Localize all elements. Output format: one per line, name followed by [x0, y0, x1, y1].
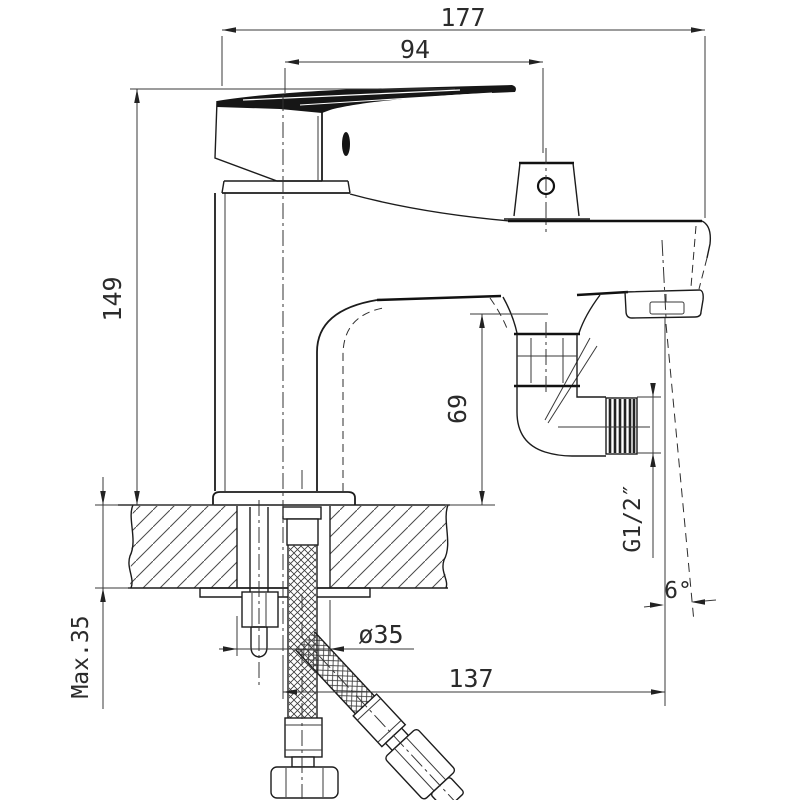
dim-max-thickness: Max.35 — [68, 477, 130, 709]
dim-upper-width-label: 94 — [400, 35, 430, 64]
spout — [350, 194, 710, 300]
faucet-technical-drawing: 177 94 149 69 Max.35 ø35 1 — [0, 0, 800, 800]
mounting-nut — [242, 592, 278, 627]
mounting-stud — [242, 500, 278, 688]
dim-outlet-height: 69 — [443, 314, 548, 505]
dim-max-thickness-label: Max.35 — [68, 615, 94, 698]
faucet-column — [215, 193, 383, 491]
dim-spray-angle-label: 6° — [664, 578, 692, 604]
dim-height: 149 — [95, 89, 455, 505]
backing-washer-plate — [200, 588, 370, 597]
hose-ferrule — [285, 718, 322, 757]
dim-lower-offset-label: 137 — [448, 664, 493, 693]
dim-thread-label: G1/2″ — [620, 483, 646, 552]
diverter-knob — [504, 148, 590, 232]
hose-hex-nut-vertical — [271, 767, 338, 798]
dim-overall-width-label: 177 — [440, 3, 485, 32]
faucet-technical-drawing-page: 177 94 149 69 Max.35 ø35 1 — [0, 0, 800, 800]
base-flange — [213, 492, 355, 505]
dim-spray-angle: 6° — [644, 318, 716, 706]
dim-height-label: 149 — [98, 276, 127, 321]
handle-pivot-detail — [342, 132, 350, 156]
dim-outlet-height-label: 69 — [443, 394, 472, 424]
dim-overall-width: 177 — [222, 3, 705, 218]
body-collar — [222, 181, 350, 193]
shower-outlet — [490, 295, 650, 456]
dim-hole-diameter-label: ø35 — [358, 620, 403, 649]
